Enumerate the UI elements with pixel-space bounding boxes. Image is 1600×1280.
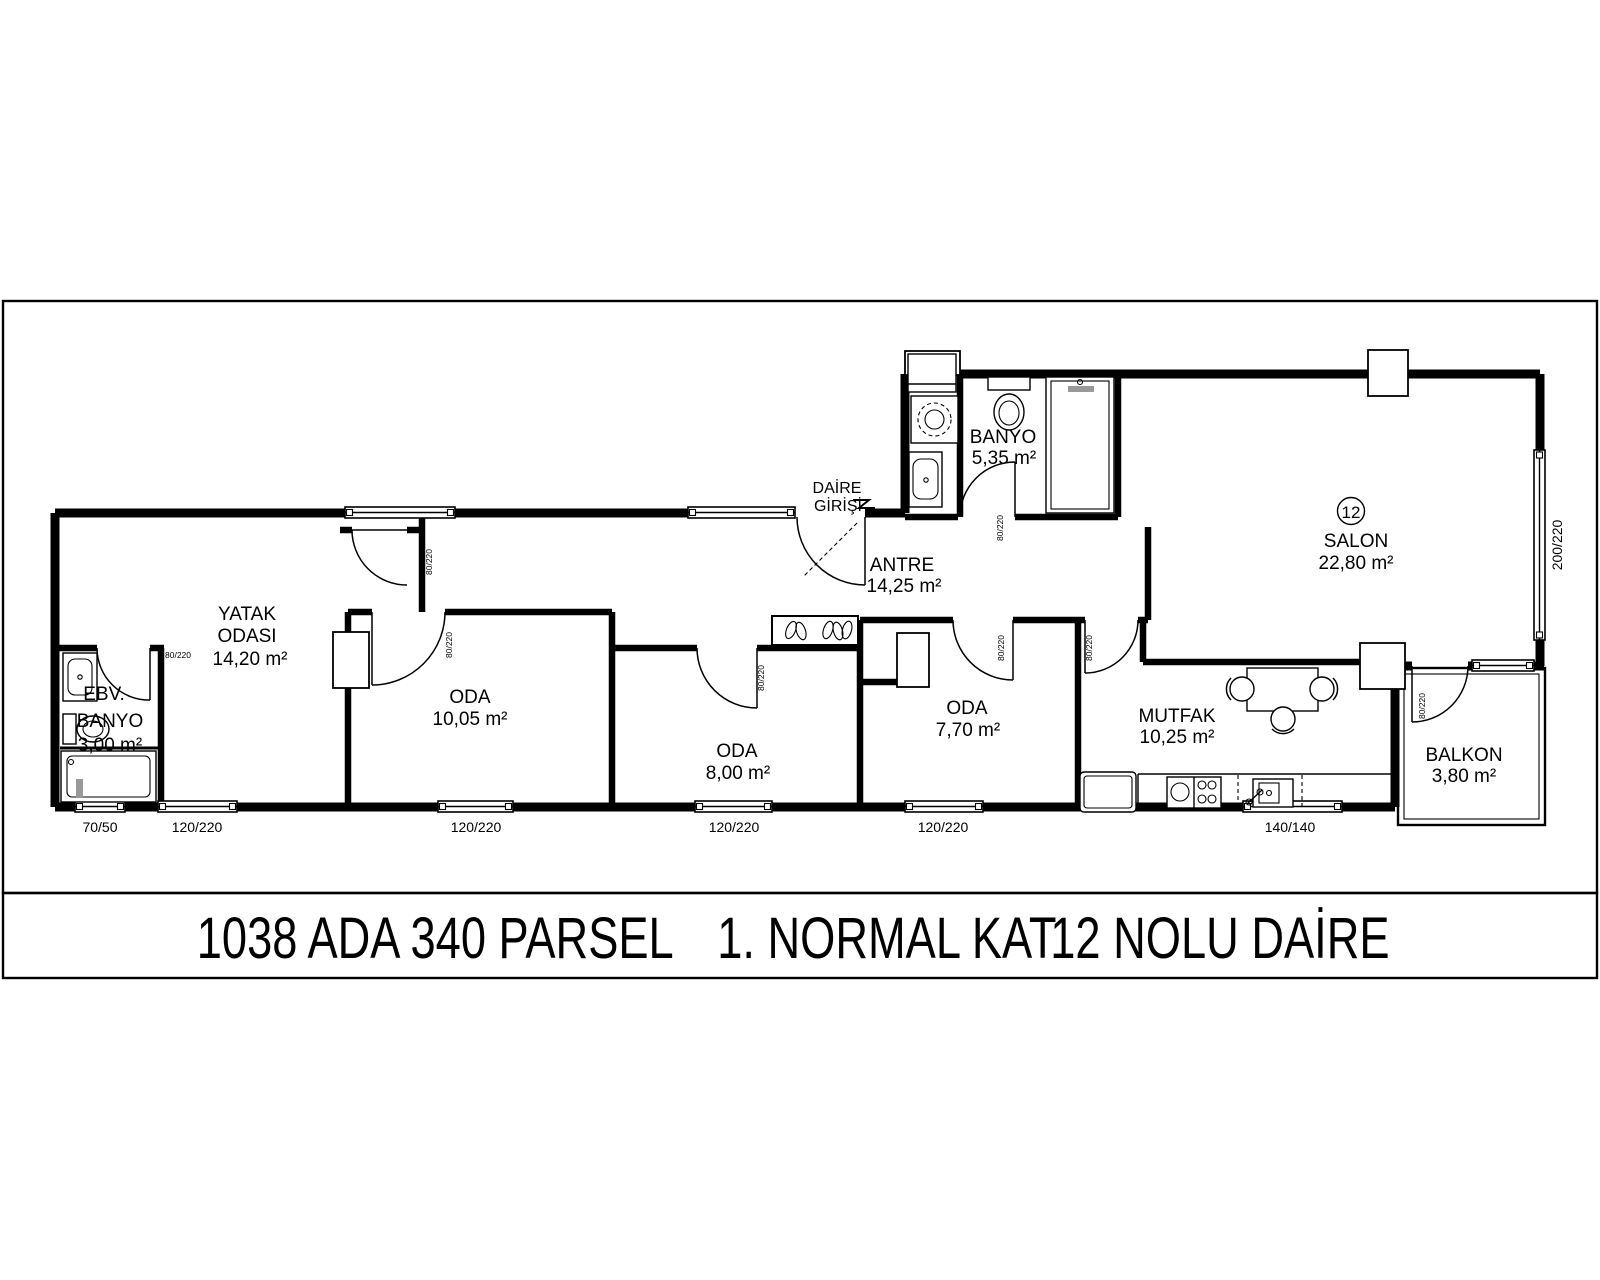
tag-door-oda2: 80/220 xyxy=(756,665,766,691)
columns xyxy=(333,350,1408,689)
drawing-page: YATAK ODASI 14,20 m² EBV. BANYO 3,00 m² … xyxy=(0,0,1600,1280)
label-balkon-name: BALKON xyxy=(1425,745,1502,766)
tag-door-mutfak: 80/220 xyxy=(1084,635,1094,661)
label-antre-name: ANTRE xyxy=(870,555,934,576)
washing-machine xyxy=(911,396,958,443)
banyo-toilet xyxy=(988,377,1030,430)
exterior-walls xyxy=(55,374,1544,807)
tag-door-banyo: 80/220 xyxy=(995,515,1005,541)
column-bedroom-wall xyxy=(333,632,369,688)
title-part3: 12 NOLU DAİRE xyxy=(1050,907,1389,972)
closet-oda3 xyxy=(897,633,929,687)
stove xyxy=(1167,777,1221,808)
column-salon-north xyxy=(1368,350,1408,396)
dining-table xyxy=(1247,668,1318,711)
label-banyo-name: BANYO xyxy=(970,427,1037,448)
tag-door-ebv: 80/220 xyxy=(165,650,191,660)
tag-door-oda3: 80/220 xyxy=(996,635,1006,661)
door-banyo xyxy=(960,462,1015,517)
laundry-counter xyxy=(908,354,956,392)
column-salon-south xyxy=(1360,643,1405,689)
label-mutfak-name: MUTFAK xyxy=(1138,706,1215,727)
door-oda2 xyxy=(697,648,757,708)
label-yatak-line1: YATAK xyxy=(218,604,276,625)
fridge xyxy=(1080,772,1136,812)
label-oda2-area: 8,00 m² xyxy=(706,763,770,784)
label-balkon-area: 3,80 m² xyxy=(1432,766,1496,787)
walls xyxy=(55,374,1544,807)
shoe-cabinet xyxy=(772,616,858,645)
dim-win-mutfak: 140/140 xyxy=(1265,819,1316,835)
window-oda2 xyxy=(695,801,772,812)
dim-win-oda1: 120/220 xyxy=(451,819,502,835)
window-oda1 xyxy=(438,801,513,812)
label-ebv-line2: BANYO xyxy=(77,711,144,732)
label-oda3-name: ODA xyxy=(946,698,988,719)
dim-win-oda2: 120/220 xyxy=(709,819,760,835)
dim-win-yatak: 120/220 xyxy=(172,819,223,835)
window-top-antre xyxy=(688,507,795,518)
label-oda3-area: 7,70 m² xyxy=(936,720,1000,741)
tag-door-yatak: 80/220 xyxy=(424,549,434,575)
label-oda1-area: 10,05 m² xyxy=(433,709,508,730)
unit-number-text: 12 xyxy=(1342,503,1361,522)
label-salon-area: 22,80 m² xyxy=(1319,553,1394,574)
label-yatak-area: 14,20 m² xyxy=(213,649,288,670)
label-antre-area: 14,25 m² xyxy=(867,576,942,597)
dim-win-ebv: 70/50 xyxy=(82,819,117,835)
label-salon-name: SALON xyxy=(1324,531,1388,552)
banyo-lavatory xyxy=(909,452,942,507)
label-yatak-line2: ODASI xyxy=(217,626,276,647)
window-salon-right xyxy=(1534,450,1545,640)
dim-win-salon: 200/220 xyxy=(1549,519,1565,570)
ebv-shower xyxy=(61,751,156,802)
window-oda3 xyxy=(905,801,983,812)
title-part2: 1. NORMAL KAT xyxy=(717,907,1056,972)
title-block: 1038 ADA 340 PARSEL 1. NORMAL KAT 12 NOL… xyxy=(197,907,1390,972)
label-oda2-name: ODA xyxy=(716,741,758,762)
label-ebv-area: 3,00 m² xyxy=(78,735,142,756)
label-entrance-line2: GİRİŞİ xyxy=(814,496,862,515)
door-yatak-odasi xyxy=(352,530,407,585)
tag-door-balkon: 80/220 xyxy=(1417,693,1427,719)
window-yatak-odasi xyxy=(158,801,237,812)
door-oda1 xyxy=(372,612,445,685)
label-entrance-line1: DAİRE xyxy=(813,478,862,497)
title-part1: 1038 ADA 340 PARSEL xyxy=(197,907,674,972)
dim-win-oda3: 120/220 xyxy=(918,819,969,835)
label-mutfak-area: 10,25 m² xyxy=(1140,727,1215,748)
banyo-shower xyxy=(1046,377,1114,513)
label-oda1-name: ODA xyxy=(449,687,491,708)
window-balkon xyxy=(1472,660,1534,671)
floor-plan-drawing: YATAK ODASI 14,20 m² EBV. BANYO 3,00 m² … xyxy=(0,0,1600,1280)
label-ebv-line1: EBV. xyxy=(83,684,125,705)
label-banyo-area: 5,35 m² xyxy=(972,448,1036,469)
tag-door-oda1: 80/220 xyxy=(444,632,454,658)
window-top-yatak xyxy=(345,507,455,518)
